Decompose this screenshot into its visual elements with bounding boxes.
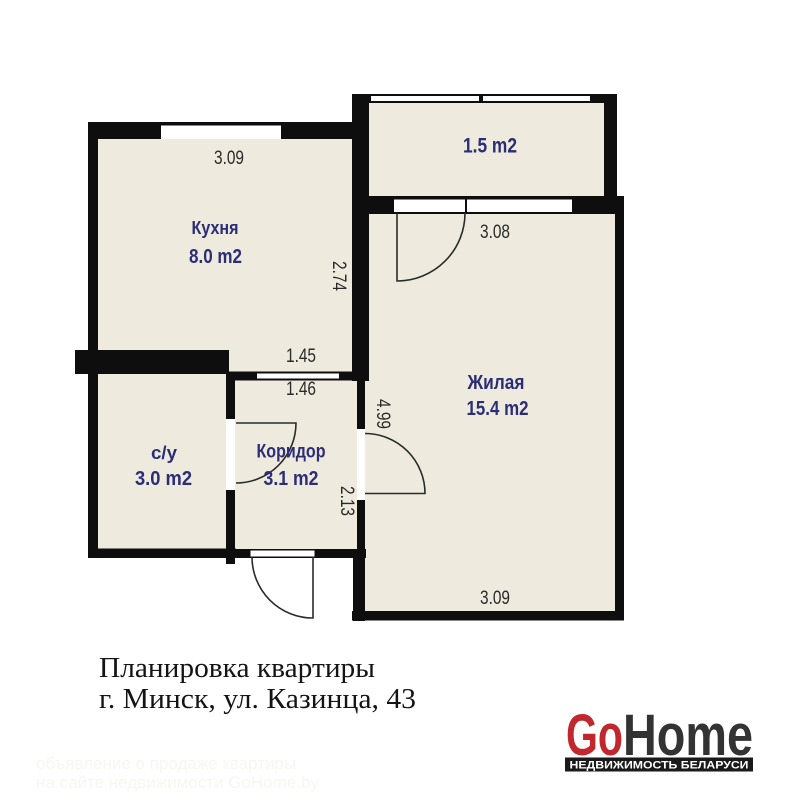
svg-text:объявление о продаже квартиры: объявление о продаже квартиры xyxy=(36,754,296,773)
svg-text:15.4 m2: 15.4 m2 xyxy=(467,398,529,420)
svg-text:с/у: с/у xyxy=(151,443,177,463)
svg-text:Планировка квартиры: Планировка квартиры xyxy=(99,652,375,684)
svg-text:Жилая: Жилая xyxy=(467,372,525,394)
svg-text:3.1 m2: 3.1 m2 xyxy=(264,468,319,490)
svg-text:2.13: 2.13 xyxy=(336,486,357,516)
svg-text:Коридор: Коридор xyxy=(257,442,326,463)
svg-text:НЕДВИЖИМОСТЬ БЕЛАРУСИ: НЕДВИЖИМОСТЬ БЕЛАРУСИ xyxy=(570,760,749,772)
svg-text:4.99: 4.99 xyxy=(372,399,393,429)
svg-text:на сайте недвижимости GoHome.b: на сайте недвижимости GoHome.by xyxy=(36,773,319,792)
svg-text:1.46: 1.46 xyxy=(286,379,316,400)
svg-text:1.5 m2: 1.5 m2 xyxy=(463,135,517,158)
svg-text:2.74: 2.74 xyxy=(328,261,349,291)
svg-text:Кухня: Кухня xyxy=(192,218,239,238)
svg-text:3.08: 3.08 xyxy=(480,222,510,243)
svg-text:3.09: 3.09 xyxy=(214,148,244,169)
svg-text:3.09: 3.09 xyxy=(480,588,510,609)
svg-text:8.0 m2: 8.0 m2 xyxy=(189,246,242,268)
svg-text:1.45: 1.45 xyxy=(286,346,316,367)
svg-text:г. Минск, ул. Казинца, 43: г. Минск, ул. Казинца, 43 xyxy=(99,683,416,715)
svg-text:3.0 m2: 3.0 m2 xyxy=(135,468,192,490)
